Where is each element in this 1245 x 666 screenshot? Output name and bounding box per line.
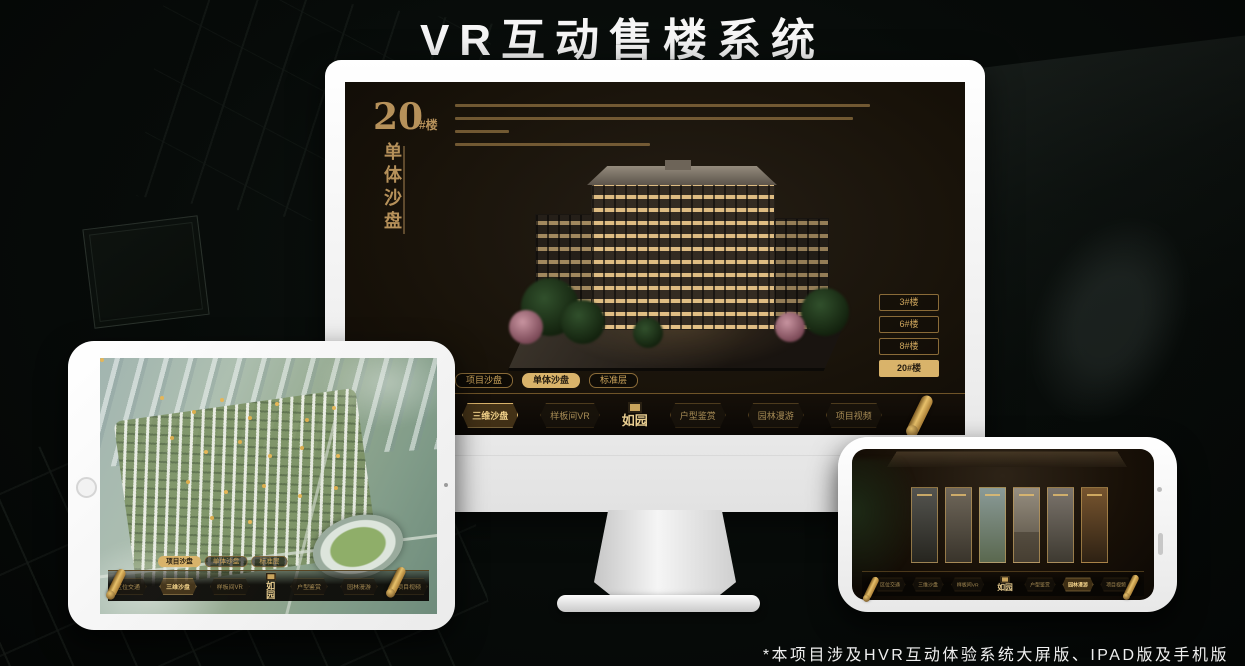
brand-logo: 如园 xyxy=(997,576,1013,592)
seal-icon xyxy=(628,402,642,413)
menu-item-floorplan[interactable]: 户型鉴赏 xyxy=(670,403,726,428)
gallery-panel[interactable] xyxy=(1047,487,1074,563)
floor-button-6[interactable]: 6#楼 xyxy=(879,316,939,333)
menu-item-location-traffic[interactable]: 区位交通 xyxy=(875,577,906,591)
tablet-camera-dot xyxy=(444,483,448,487)
tab-standard-floor[interactable]: 标准层 xyxy=(251,556,287,567)
page-title: VR互动售楼系统 xyxy=(0,4,1245,68)
tab-project-sandtable[interactable]: 项目沙盘 xyxy=(158,556,201,567)
tree xyxy=(801,288,849,336)
tree xyxy=(633,318,663,348)
floor-button-8[interactable]: 8#楼 xyxy=(879,338,939,355)
phone-speaker-slot xyxy=(1158,533,1163,555)
floor-button-3[interactable]: 3#楼 xyxy=(879,294,939,311)
scroll-handle-icon[interactable] xyxy=(905,393,934,435)
menu-item-model-room-vr[interactable]: 样板间VR xyxy=(540,403,600,428)
menu-item-model-room-vr[interactable]: 样板间VR xyxy=(952,577,985,591)
tab-standard-floor[interactable]: 标准层 xyxy=(589,373,638,388)
building-facade xyxy=(591,182,775,330)
interior-ceiling-beam xyxy=(887,452,1127,467)
gallery-panel[interactable] xyxy=(979,487,1006,563)
brand-logo-text: 如园 xyxy=(264,581,276,599)
gallery-panel[interactable] xyxy=(945,487,972,563)
blossom-tree xyxy=(509,310,543,344)
menu-item-floorplan[interactable]: 户型鉴赏 xyxy=(1024,577,1055,591)
tablet-screen: 项目沙盘 单体沙盘 标准层 区位交通 三维沙盘 样板间VR 如园 户型鉴赏 园林… xyxy=(100,358,437,614)
menu-item-project-video[interactable]: 项目视频 xyxy=(826,403,882,428)
tree xyxy=(561,300,605,344)
brand-logo-text: 如园 xyxy=(997,584,1013,592)
gallery-panel-row xyxy=(911,487,1108,563)
phone-menu-bar: 区位交通 三维沙盘 样板间VR 如园 户型鉴赏 园林漫游 项目视频 xyxy=(862,571,1144,596)
subtitle-divider xyxy=(403,146,405,234)
brand-logo: 如园 xyxy=(622,402,648,428)
tablet-menu-bar: 区位交通 三维沙盘 样板间VR 如园 户型鉴赏 园林漫游 项目视频 xyxy=(108,570,429,601)
promo-canvas: VR互动售楼系统 20 #楼 单体沙盘 3#楼 xyxy=(0,0,1245,666)
seal-icon xyxy=(265,572,275,580)
cloud-mist xyxy=(317,358,437,428)
tab-single-sandtable[interactable]: 单体沙盘 xyxy=(205,556,248,567)
brand-logo-text: 如园 xyxy=(622,415,648,428)
tab-project-sandtable[interactable]: 项目沙盘 xyxy=(455,373,513,388)
gallery-panel[interactable] xyxy=(1081,487,1108,563)
tab-single-sandtable[interactable]: 单体沙盘 xyxy=(522,373,580,388)
monitor-stand-base xyxy=(557,595,760,612)
building-number-badges xyxy=(100,358,104,362)
menu-item-garden-tour[interactable]: 园林漫游 xyxy=(1062,577,1093,591)
phone-camera-dot xyxy=(1157,487,1162,492)
menu-item-model-room-vr[interactable]: 样板间VR xyxy=(210,578,249,595)
floor-button-group: 3#楼 6#楼 8#楼 20#楼 xyxy=(879,294,939,382)
menu-item-3d-sandtable[interactable]: 三维沙盘 xyxy=(462,403,518,428)
background-plaque xyxy=(82,215,209,328)
building-3d-render[interactable] xyxy=(513,160,853,376)
floor-button-20[interactable]: 20#楼 xyxy=(879,360,939,377)
menu-item-3d-sandtable[interactable]: 三维沙盘 xyxy=(913,577,944,591)
sandtable-tab-group: 项目沙盘 单体沙盘 标准层 xyxy=(455,373,638,388)
building-number: 20 xyxy=(373,96,423,138)
menu-item-floorplan[interactable]: 户型鉴赏 xyxy=(290,578,327,595)
menu-item-3d-sandtable[interactable]: 三维沙盘 xyxy=(160,578,197,595)
description-text-lines xyxy=(455,104,870,156)
menu-item-garden-tour[interactable]: 园林漫游 xyxy=(340,578,377,595)
monitor-stand-neck xyxy=(594,510,736,598)
roof-penthouse xyxy=(665,160,691,170)
seal-icon xyxy=(1001,576,1009,583)
blossom-tree xyxy=(775,312,805,342)
gallery-panel[interactable] xyxy=(1013,487,1040,563)
interior-foliage xyxy=(852,459,918,589)
footnote-text: *本项目涉及HVR互动体验系统大屏版、IPAD版及手机版 xyxy=(763,641,1229,665)
tablet-tab-group: 项目沙盘 单体沙盘 标准层 xyxy=(158,556,288,567)
gallery-panel[interactable] xyxy=(911,487,938,563)
building-number-suffix: #楼 xyxy=(419,116,438,133)
building-subtitle-vertical: 单体沙盘 xyxy=(379,142,405,234)
brand-logo: 如园 xyxy=(264,572,276,599)
menu-item-garden-tour[interactable]: 园林漫游 xyxy=(748,403,804,428)
phone-screen: 区位交通 三维沙盘 样板间VR 如园 户型鉴赏 园林漫游 项目视频 xyxy=(852,449,1154,600)
tablet-home-button[interactable] xyxy=(76,477,97,498)
